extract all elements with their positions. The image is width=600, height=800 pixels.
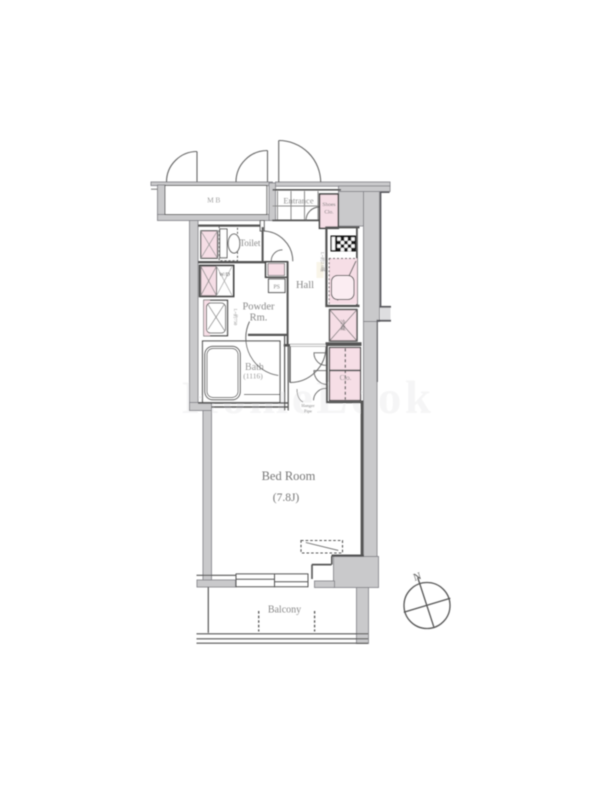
svg-text:Balcony: Balcony <box>268 605 301 616</box>
svg-text:蔵: 蔵 <box>340 325 345 332</box>
svg-text:Entrance: Entrance <box>283 196 313 206</box>
svg-text:L=約750: L=約750 <box>232 309 239 326</box>
svg-text:Pipe: Pipe <box>304 409 312 414</box>
svg-text:Toilet: Toilet <box>240 238 261 248</box>
svg-text:Hall: Hall <box>296 280 314 291</box>
svg-text:Shoes: Shoes <box>322 202 335 208</box>
svg-text:Clo.: Clo. <box>324 210 334 216</box>
svg-text:Clo.: Clo. <box>340 374 352 382</box>
svg-text:(1116): (1116) <box>243 372 263 381</box>
svg-text:PS: PS <box>273 285 280 291</box>
svg-text:(7.8J): (7.8J) <box>273 492 300 504</box>
svg-text:N: N <box>412 571 423 584</box>
svg-text:冷: 冷 <box>340 319 345 326</box>
svg-text:Powder: Powder <box>242 302 275 313</box>
svg-text:MB: MB <box>207 196 222 205</box>
svg-text:Hanger: Hanger <box>301 403 315 408</box>
svg-text:W/D: W/D <box>219 272 230 278</box>
svg-text:Rm.: Rm. <box>250 313 268 324</box>
svg-text:Bed Room: Bed Room <box>262 469 316 483</box>
svg-text:L=約2.6帳: L=約2.6帳 <box>319 252 326 272</box>
